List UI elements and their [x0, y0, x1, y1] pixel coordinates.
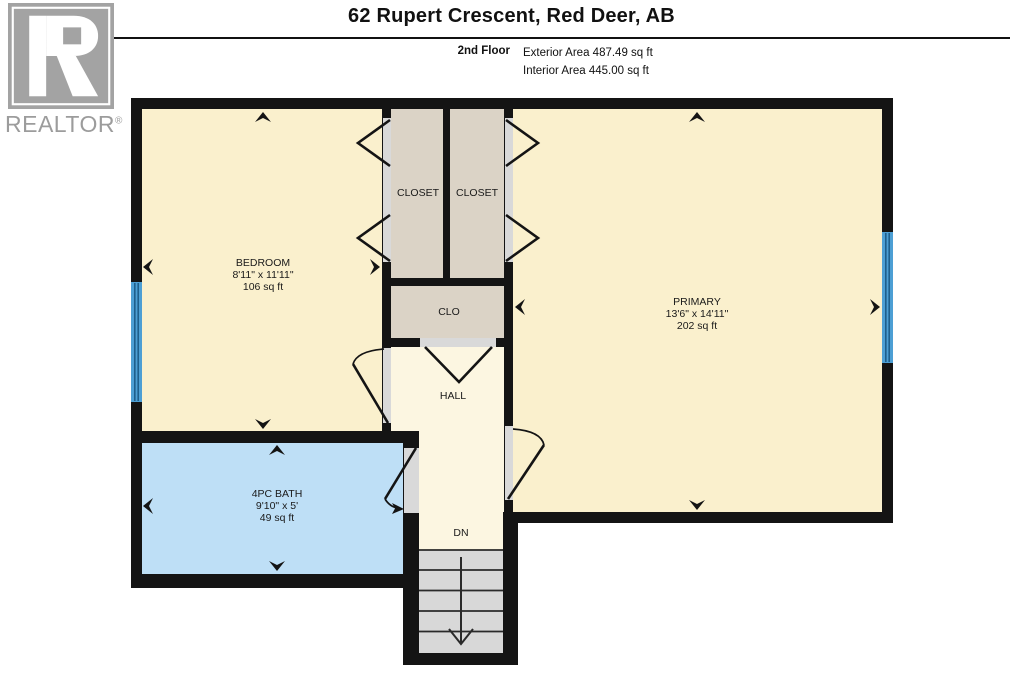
primary-label: PRIMARY: [673, 296, 721, 308]
primary-area: 202 sq ft: [677, 320, 717, 332]
closet-left-label: CLOSET: [397, 187, 440, 199]
wall-primary-bottom: [503, 512, 893, 523]
wall-closet-divider: [443, 109, 450, 279]
floorplan-page: 62 Rupert Crescent, Red Deer, AB 2nd Flo…: [0, 0, 1023, 680]
wall-closet-bottom: [382, 278, 513, 286]
floor-plan: BEDROOM 8'11" x 11'11" 106 sq ft PRIMARY…: [0, 0, 1023, 680]
bedroom-dimensions: 8'11" x 11'11": [232, 269, 293, 281]
window-primary: [882, 232, 893, 363]
wall-stairs-right: [503, 512, 518, 665]
bedroom-area: 106 sq ft: [243, 281, 283, 293]
bath-area: 49 sq ft: [260, 512, 295, 524]
wall-top: [131, 98, 893, 109]
hall-label: HALL: [440, 390, 466, 402]
opening-bedroom-door: [383, 348, 391, 423]
wall-bath-top: [131, 431, 419, 443]
window-bedroom: [131, 282, 142, 402]
opening-primary-door: [505, 426, 513, 500]
clo-label: CLO: [438, 306, 460, 318]
opening-bedroom-bifold: [383, 118, 391, 262]
wall-bath-bottom: [131, 574, 419, 588]
bedroom-label: BEDROOM: [236, 257, 290, 269]
stairs-dn-label: DN: [453, 527, 468, 539]
opening-primary-bifold: [505, 118, 513, 262]
wall-stairs-bottom: [403, 653, 518, 665]
opening-clo-door: [420, 338, 496, 347]
bath-dimensions: 9'10" x 5': [256, 500, 298, 512]
primary-dimensions: 13'6" x 14'11": [666, 308, 729, 320]
bath-label: 4PC BATH: [252, 488, 303, 500]
closet-right-label: CLOSET: [456, 187, 499, 199]
